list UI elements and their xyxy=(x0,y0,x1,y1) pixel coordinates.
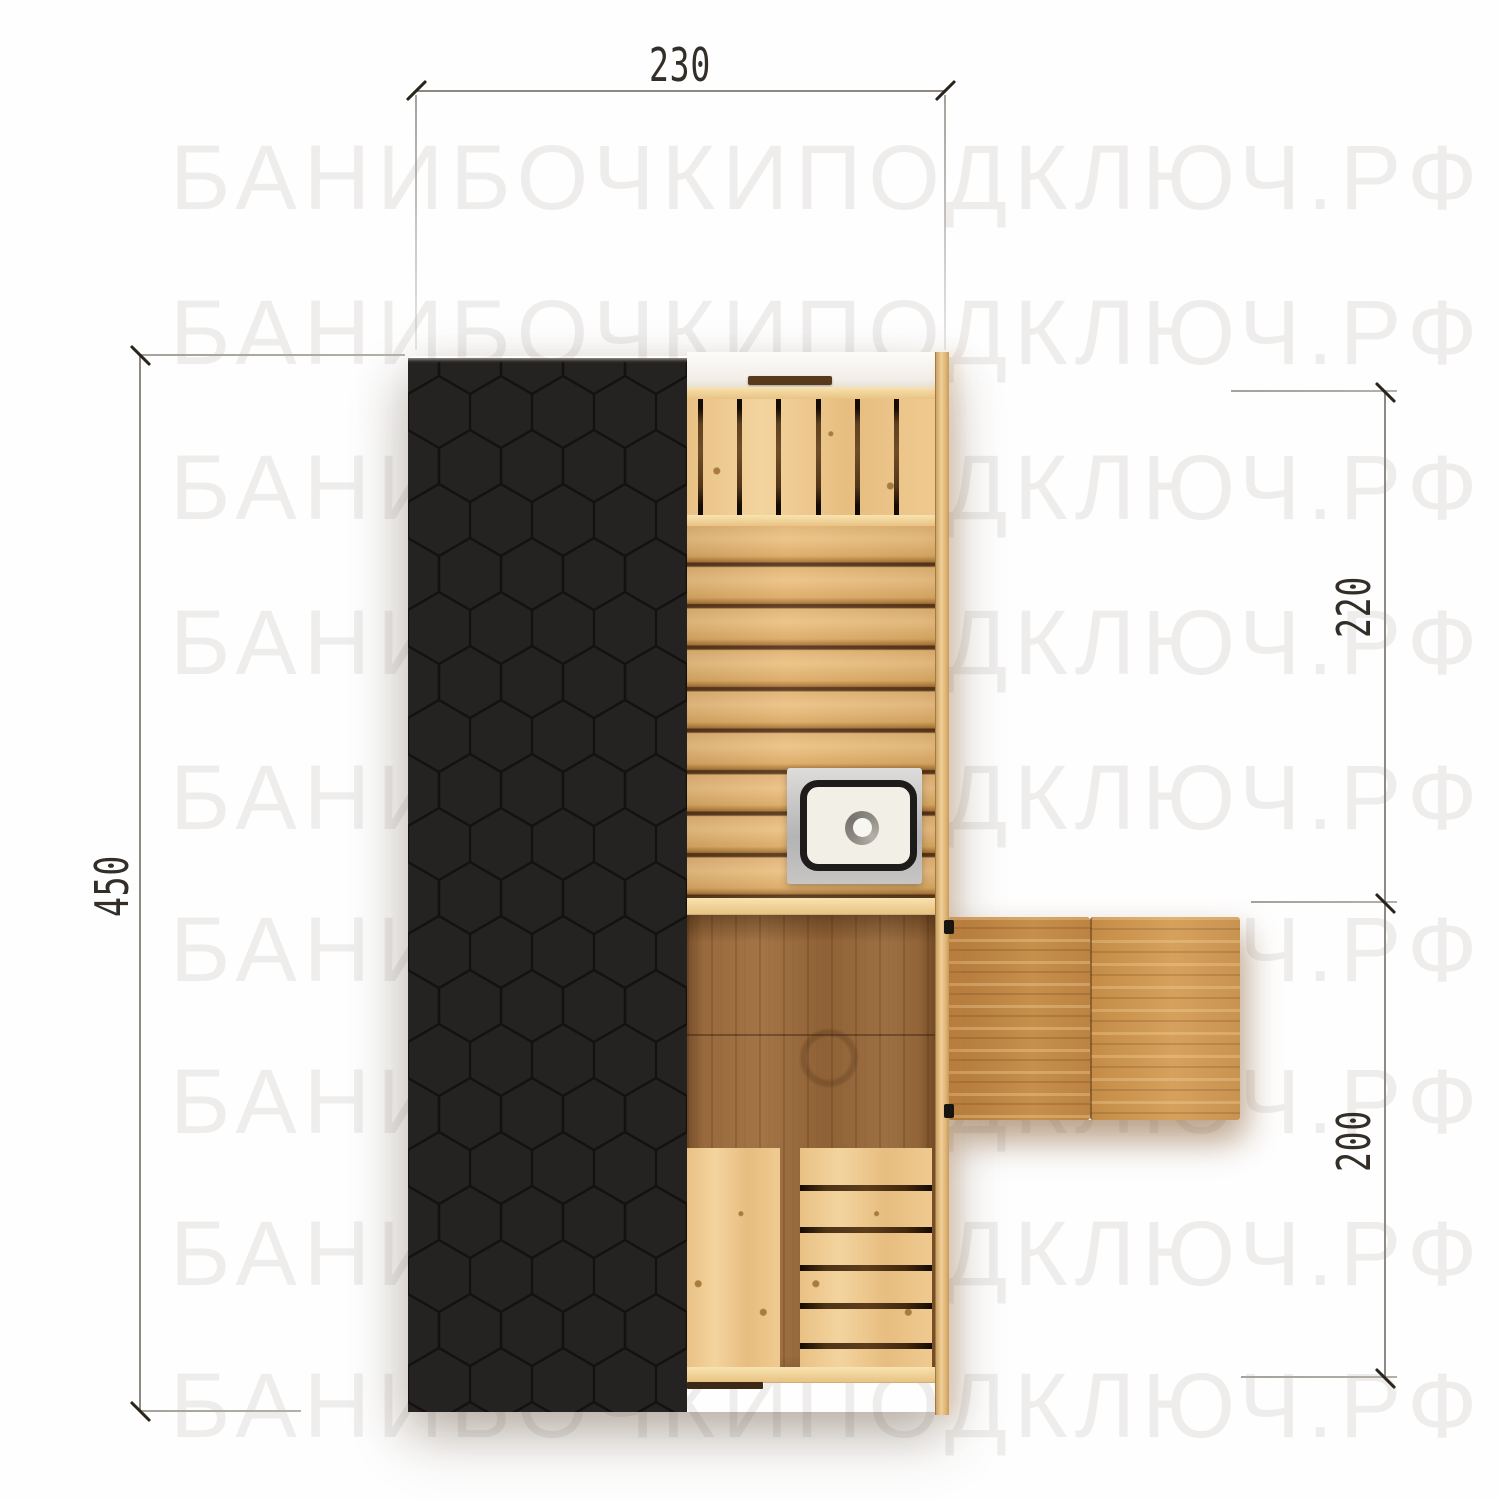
dim-extension-line xyxy=(141,354,405,356)
watermark-row: БАНИБОЧКИПОДКЛЮЧ.РФ xyxy=(170,126,1484,231)
dim-label-room-lower: 200 xyxy=(1327,1091,1381,1192)
lower-bench-left xyxy=(687,1148,780,1367)
bench-slat-gap xyxy=(800,1303,932,1309)
right-wall xyxy=(935,352,949,1415)
bench-slat-gap xyxy=(737,399,742,515)
roof-ridge-edge xyxy=(408,358,687,363)
dim-label-width: 230 xyxy=(630,38,731,92)
lower-bench-right xyxy=(800,1148,932,1367)
bench-slat-gap xyxy=(800,1343,932,1349)
bottom-rail xyxy=(687,1367,935,1383)
bench-slat-gap xyxy=(816,399,821,515)
dim-extension-line xyxy=(944,95,946,350)
sauna-floor-plan: БАНИБОЧКИПОДКЛЮЧ.РФ БАНИБОЧКИПОДКЛЮЧ.РФ … xyxy=(0,0,1500,1500)
dim-right-line xyxy=(1384,392,1386,1378)
bench-slat-gap xyxy=(800,1227,932,1233)
door-hinge-bottom xyxy=(944,1104,954,1118)
roof-hex-pattern xyxy=(408,358,687,1412)
washroom-threshold-rail xyxy=(687,898,935,915)
dim-extension-line xyxy=(141,1410,301,1412)
entrance-deck-right-panel xyxy=(1090,917,1240,1120)
sink-drain-center xyxy=(853,818,872,837)
door-hinge-top xyxy=(944,920,954,934)
dim-label-height: 450 xyxy=(85,836,139,937)
bench-slat-gap xyxy=(894,399,899,515)
washroom-floor-drain xyxy=(793,1022,865,1094)
bench-slat-gap xyxy=(800,1265,932,1271)
entrance-deck-left-panel xyxy=(948,917,1090,1120)
dim-extension-line xyxy=(1231,390,1397,392)
dim-extension-line xyxy=(415,95,417,350)
bench-slat-gap xyxy=(776,399,781,515)
dim-left-line xyxy=(139,355,141,1412)
roof-panel xyxy=(408,358,687,1412)
dim-extension-line xyxy=(1251,901,1397,903)
vent-bar xyxy=(748,376,832,385)
bench-slat-gap xyxy=(800,1185,932,1191)
bench-slat-gap xyxy=(855,399,860,515)
dim-extension-line xyxy=(1241,1376,1397,1378)
dim-label-room-upper: 220 xyxy=(1327,557,1381,658)
bench-slat-gap xyxy=(698,399,703,515)
under-step-shadow xyxy=(687,1382,763,1389)
